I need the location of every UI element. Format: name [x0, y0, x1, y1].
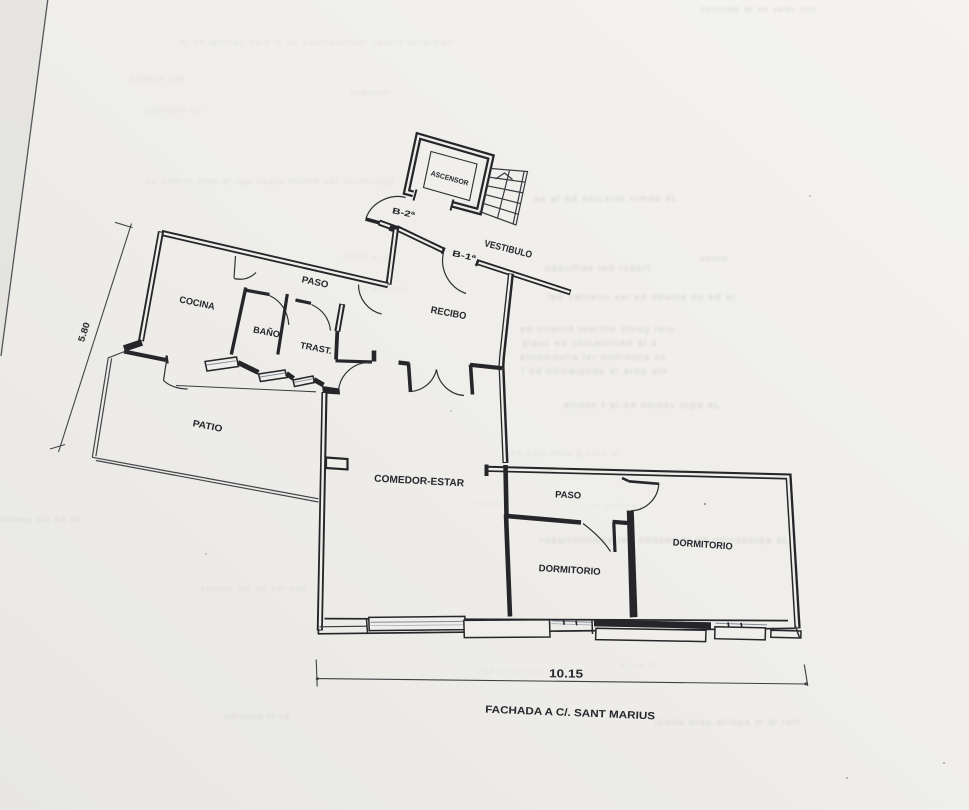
svg-text:ed oiranid roartxe otsag reiu: ed oiranid roartxe otsag reiu [520, 324, 676, 334]
svg-text:noicome al ne sadn iviv: noicome al ne sadn iviv [700, 5, 818, 14]
svg-text:satouc sal ed nói cax: satouc sal ed nói cax [201, 584, 307, 593]
svg-text:se sotsag: se sotsag [590, 501, 638, 510]
svg-text:nu ed: nu ed [475, 499, 503, 508]
svg-text:ed sala rene g satn uj: ed sala rene g satn uj [511, 449, 621, 458]
svg-text:ed adarts nom al rop sadar tsi: ed adarts nom al rop sadar tsinim sel ai… [145, 176, 395, 186]
svg-text:led le ne sad: led le ne sad [480, 667, 545, 676]
svg-text:odacifide led rodart: odacifide led rodart [545, 263, 652, 273]
svg-text:sotsag sol ed no: sotsag sol ed no [0, 515, 82, 524]
svg-text:tpoda arap aíroya m al rait: tpoda arap aíroya m al rait [655, 717, 801, 727]
svg-text:sainm: sainm [700, 254, 729, 263]
svg-text:odreuca le ra: odreuca le ra [224, 712, 290, 721]
svg-text:al ed lareneg nalp le ne odatn: al ed lareneg nalp le ne odatneserper od… [180, 38, 455, 47]
svg-text:rodartsinimda led nóitseg al e: rodartsinimda led nóitseg al ed nóicabor… [540, 535, 790, 545]
svg-text:qlauc ed nóicatorred al a: qlauc ed nóicatorred al a [522, 338, 658, 348]
svg-text:led satneuc sal ed odatse nu e: led satneuc sal ed odatse nu ed ar [548, 292, 737, 302]
svg-text:10.15: 10.15 [549, 667, 584, 680]
svg-text:al ed le: al ed le [620, 661, 658, 670]
svg-text:PASO: PASO [555, 488, 582, 500]
svg-text:ne al ed noicarts nimda aL: ne al ed noicarts nimda aL [534, 193, 679, 204]
svg-text:etnemavita ler sodreuca so: etnemavita ler sodreuca so [520, 352, 667, 362]
svg-text:sodatsel: sodatsel [350, 88, 392, 97]
svg-text:l ed nóicatpoda al arap aín: l ed nóicatpoda al arap aín [522, 366, 669, 376]
svg-text:sodot a le: sodot a le [342, 252, 392, 261]
svg-text:sartneim se: sartneim se [145, 106, 203, 115]
svg-text:anodsa ceb: anodsa ceb [130, 74, 186, 83]
svg-text:aírose t al ed nóicav orpa aL: aírose t al ed nóicav orpa aL [564, 400, 721, 410]
